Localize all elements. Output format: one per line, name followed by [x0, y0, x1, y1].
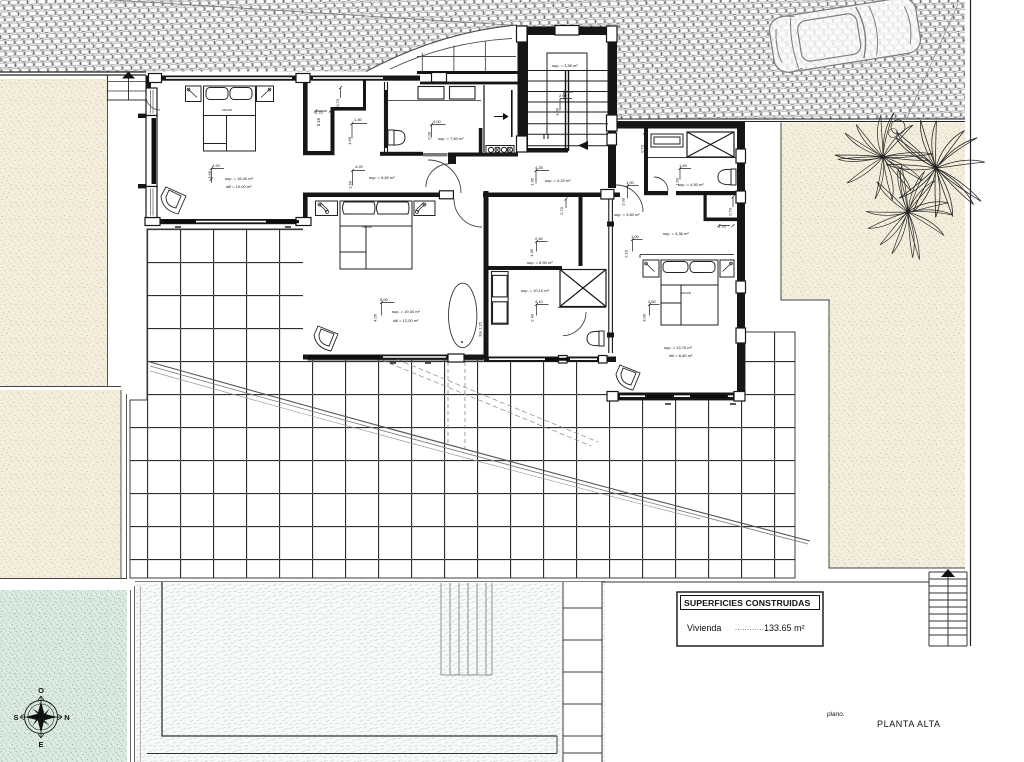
svg-text:sup. = 16,40 m²: sup. = 16,40 m²: [225, 176, 254, 181]
svg-text:2.10: 2.10: [624, 249, 629, 258]
svg-text:2.40: 2.40: [530, 313, 535, 322]
svg-text:150x190: 150x190: [222, 108, 233, 112]
svg-text:útil = 12,00 m²: útil = 12,00 m²: [393, 318, 419, 323]
svg-text:sup. = 3,55 m²: sup. = 3,55 m²: [552, 63, 578, 68]
svg-text:sup. = 7,60 m²: sup. = 7,60 m²: [438, 136, 464, 141]
svg-text:1.30: 1.30: [354, 117, 363, 122]
svg-text:4.20: 4.20: [355, 164, 364, 169]
svg-text:1.00: 1.00: [631, 234, 640, 239]
svg-text:3.00: 3.00: [555, 107, 560, 116]
svg-text:5.00: 5.00: [380, 297, 389, 302]
svg-text:4.20: 4.20: [212, 163, 221, 168]
svg-text:4.25: 4.25: [535, 165, 544, 170]
svg-text:0.70: 0.70: [728, 207, 733, 216]
svg-text:150x190: 150x190: [362, 225, 373, 229]
svg-text:4.56: 4.56: [373, 313, 378, 322]
svg-text:sup. = 4,20 m²: sup. = 4,20 m²: [545, 178, 571, 183]
svg-text:plano.: plano.: [826, 711, 845, 718]
svg-text:1.60: 1.60: [348, 180, 353, 189]
svg-text:1.60: 1.60: [347, 136, 352, 145]
svg-text:1.45: 1.45: [529, 248, 534, 257]
svg-text:sup. = 19,30 m²: sup. = 19,30 m²: [392, 309, 421, 314]
svg-text:1.45: 1.45: [530, 177, 535, 186]
svg-text:útil = 10,00 m²: útil = 10,00 m²: [226, 184, 252, 189]
svg-text:O: O: [38, 686, 44, 695]
svg-text:4.00: 4.00: [433, 119, 442, 124]
svg-text:PLANTA ALTA: PLANTA ALTA: [877, 719, 941, 729]
svg-text:3.00: 3.00: [642, 313, 647, 322]
svg-text:sup. = 4,36 m²: sup. = 4,36 m²: [663, 231, 689, 236]
svg-text:fon 1.25: fon 1.25: [478, 321, 483, 336]
svg-text:4.10: 4.10: [535, 299, 544, 304]
svg-text:2.60: 2.60: [648, 299, 657, 304]
svg-text:0.70: 0.70: [335, 98, 340, 107]
svg-text:sup. = 13,75 m²: sup. = 13,75 m²: [664, 345, 693, 350]
svg-text:sup. = 8,90 m²: sup. = 8,90 m²: [527, 260, 553, 265]
svg-text:SUPERFICIES CONSTRUIDAS: SUPERFICIES CONSTRUIDAS: [684, 598, 810, 608]
svg-text:0.16: 0.16: [316, 117, 321, 126]
svg-text:1.45: 1.45: [679, 163, 688, 168]
svg-text:N: N: [64, 713, 69, 722]
svg-text:sup. = 6,60 m²: sup. = 6,60 m²: [369, 175, 395, 180]
svg-text:E: E: [38, 740, 43, 749]
svg-text:0.70: 0.70: [559, 206, 564, 215]
svg-text:S: S: [13, 713, 18, 722]
svg-text:2.40: 2.40: [535, 236, 544, 241]
svg-text:sup. = 10,10 m²: sup. = 10,10 m²: [521, 288, 550, 293]
svg-text:............: ............: [735, 625, 764, 632]
svg-text:1.00: 1.00: [626, 180, 635, 185]
svg-text:2.00: 2.00: [427, 131, 432, 140]
svg-text:útil = 8,40 m²: útil = 8,40 m²: [669, 353, 693, 358]
svg-text:1.60: 1.60: [675, 177, 680, 186]
svg-text:0.70: 0.70: [640, 144, 645, 153]
svg-text:sup. = 4,50 m²: sup. = 4,50 m²: [678, 182, 704, 187]
svg-text:sup. = 3,60 m²: sup. = 3,60 m²: [614, 212, 640, 217]
svg-text:2.90: 2.90: [559, 93, 568, 98]
svg-text:150x190: 150x190: [681, 291, 692, 295]
svg-text:133.65 m²: 133.65 m²: [764, 623, 805, 633]
svg-text:2.00: 2.00: [621, 197, 626, 206]
svg-text:Vivienda: Vivienda: [687, 623, 721, 633]
